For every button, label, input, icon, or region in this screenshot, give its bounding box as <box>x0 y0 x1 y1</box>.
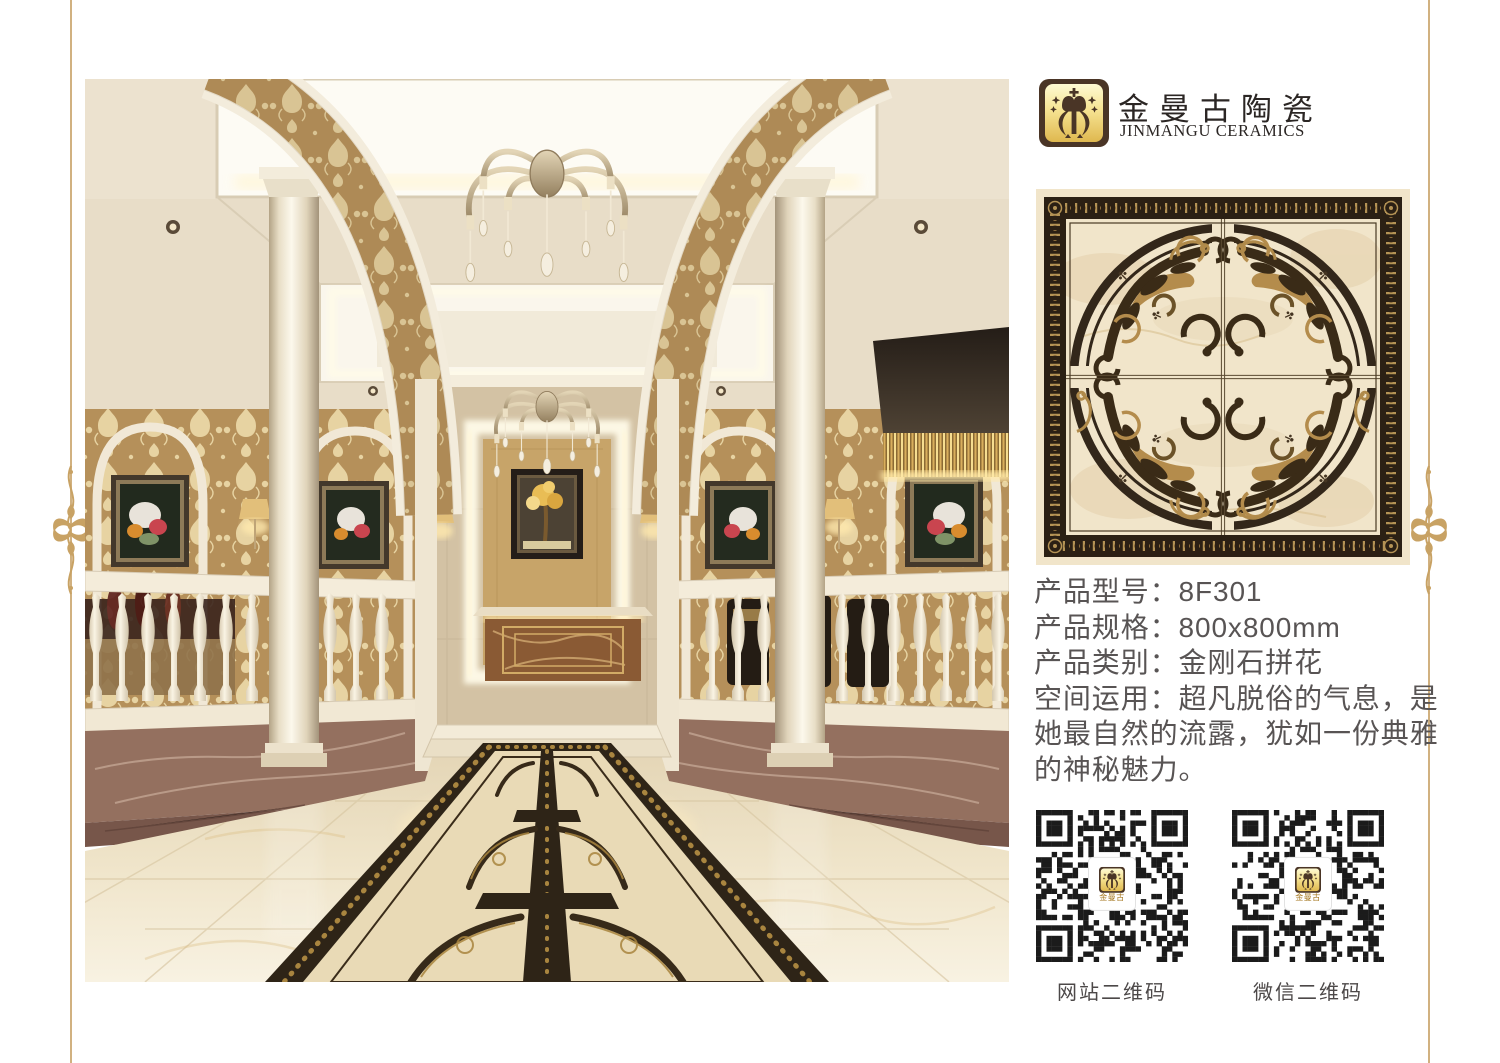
qr-code-image: 金曼古 <box>1232 810 1384 962</box>
qr-center-logo: 金曼古 <box>1284 857 1332 911</box>
product-field-category: 产品类别：金刚石拼花 <box>1034 645 1442 681</box>
qr-center-logo: 金曼古 <box>1088 857 1136 911</box>
product-field-size: 产品规格：800x800mm <box>1034 610 1442 646</box>
product-info: 产品型号：8F301 产品规格：800x800mm 产品类别：金刚石拼花 空间运… <box>1034 574 1442 787</box>
brand-name-en: JINMANGU CERAMICS <box>1120 121 1450 141</box>
brand-logo <box>1039 79 1109 147</box>
brand-logo-mark <box>1045 84 1103 142</box>
console-table <box>473 607 653 681</box>
product-tile-image <box>1036 189 1410 565</box>
qr-label: 微信二维码 <box>1232 976 1384 1005</box>
qr-label: 网站二维码 <box>1036 976 1188 1005</box>
product-field-model: 产品型号：8F301 <box>1034 574 1442 610</box>
bar-canopy <box>873 327 1009 481</box>
qr-center-text: 金曼古 <box>1295 893 1321 901</box>
feature-painting <box>511 469 583 559</box>
showroom-photo <box>85 79 1009 982</box>
catalog-page: 金曼古陶瓷 JINMANGU CERAMICS <box>0 0 1500 1063</box>
qr-wechat: 金曼古 微信二维码 <box>1232 810 1384 1005</box>
product-field-usage: 空间运用：超凡脱俗的气息，是她最自然的流露，犹如一份典雅的神秘魅力。 <box>1034 681 1442 788</box>
qr-website: 金曼古 网站二维码 <box>1036 810 1188 1005</box>
qr-code-image: 金曼古 <box>1036 810 1188 962</box>
qr-center-text: 金曼古 <box>1099 893 1125 901</box>
